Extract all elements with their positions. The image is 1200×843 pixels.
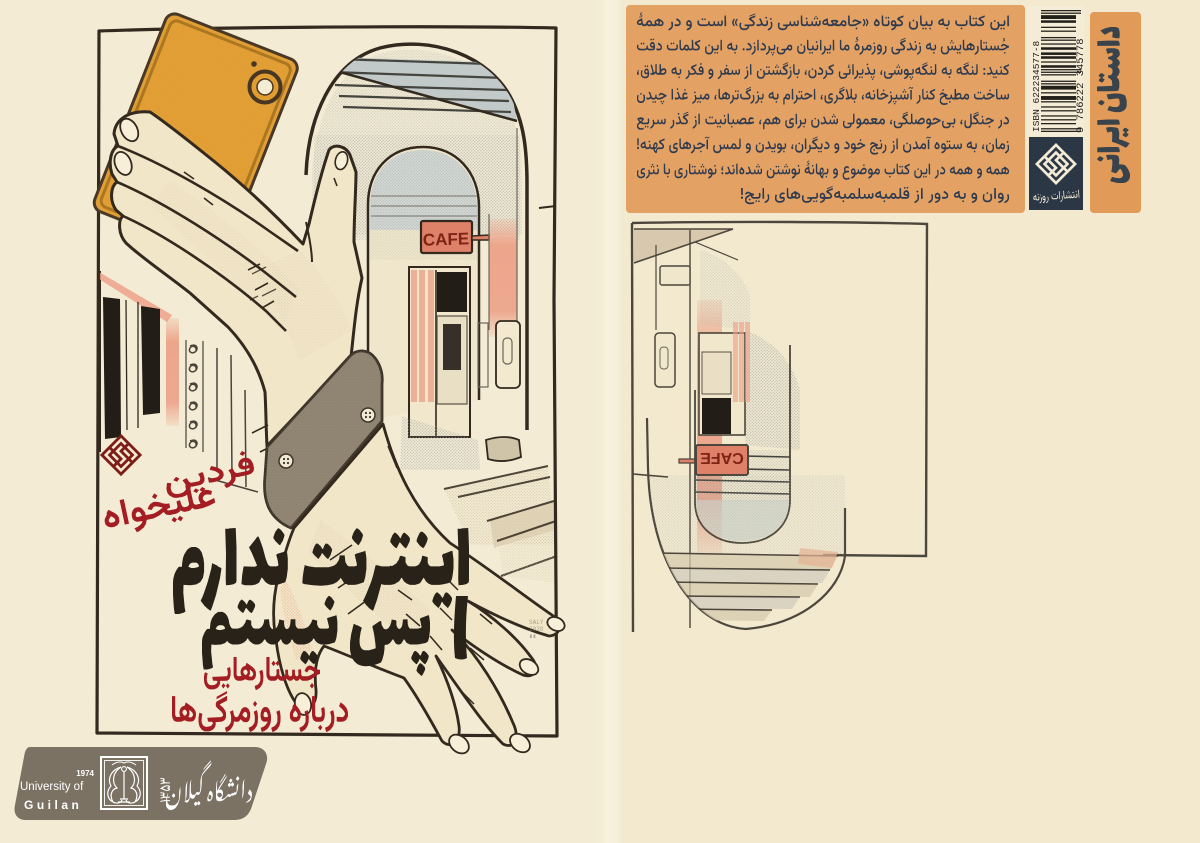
svg-text:CAFE: CAFE xyxy=(700,449,744,466)
svg-text:9 786222 345778: 9 786222 345778 xyxy=(1075,38,1087,133)
svg-text:1974: 1974 xyxy=(76,769,94,778)
svg-text:CAFE: CAFE xyxy=(423,229,470,250)
svg-text:▮▮: ▮▮ xyxy=(529,633,536,640)
svg-text:University of: University of xyxy=(20,781,84,793)
svg-text:Guilan: Guilan xyxy=(24,798,82,812)
svg-text:ISBN 622234577-8: ISBN 622234577-8 xyxy=(1031,40,1042,132)
svg-text:SALY: SALY xyxy=(529,619,544,626)
svg-text:2020: 2020 xyxy=(529,626,544,633)
